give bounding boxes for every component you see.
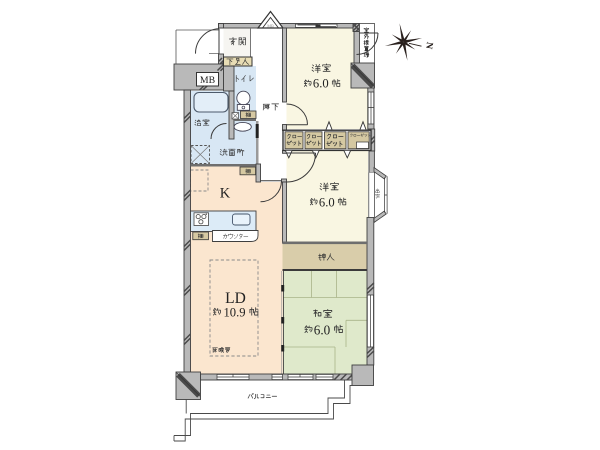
svg-text:MB: MB [200, 75, 216, 86]
svg-text:6.0: 6.0 [319, 195, 335, 209]
svg-text:6.0: 6.0 [314, 323, 331, 338]
svg-text:MB: MB [267, 24, 274, 29]
svg-text:6.0: 6.0 [313, 77, 329, 91]
svg-text:LD: LD [225, 290, 246, 307]
svg-text:K: K [220, 186, 231, 202]
svg-text:10.9: 10.9 [223, 305, 245, 319]
